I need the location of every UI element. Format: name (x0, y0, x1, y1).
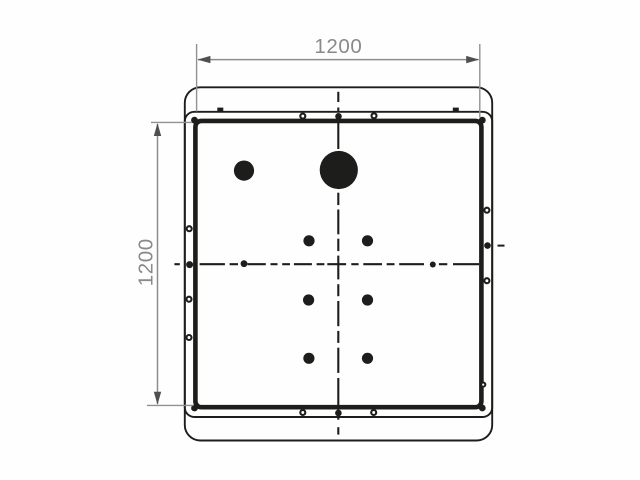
svg-text:1200: 1200 (314, 35, 362, 58)
svg-text:1200: 1200 (134, 238, 157, 286)
